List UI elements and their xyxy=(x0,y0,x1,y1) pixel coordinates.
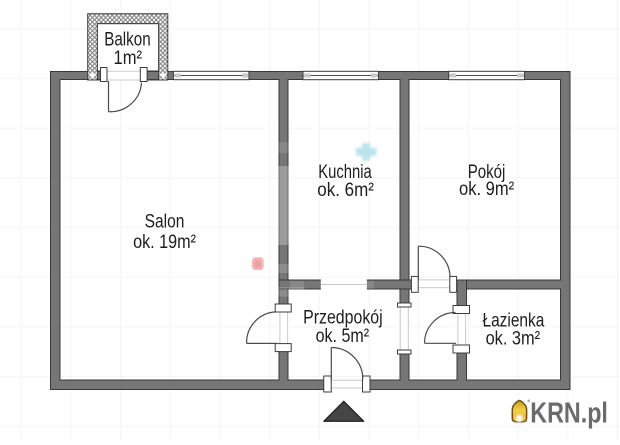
svg-text:ok. 6m²: ok. 6m² xyxy=(317,180,374,201)
svg-text:ok. 5m²: ok. 5m² xyxy=(316,326,370,347)
svg-text:KRN.pl: KRN.pl xyxy=(530,397,608,429)
svg-text:ok. 9m²: ok. 9m² xyxy=(459,179,514,200)
svg-text:ok. 3m²: ok. 3m² xyxy=(486,328,540,349)
svg-text:1m²: 1m² xyxy=(114,48,143,69)
svg-text:Salon: Salon xyxy=(145,211,185,232)
svg-text:ok. 19m²: ok. 19m² xyxy=(133,232,196,253)
svg-text:Przedpokój: Przedpokój xyxy=(303,307,383,328)
